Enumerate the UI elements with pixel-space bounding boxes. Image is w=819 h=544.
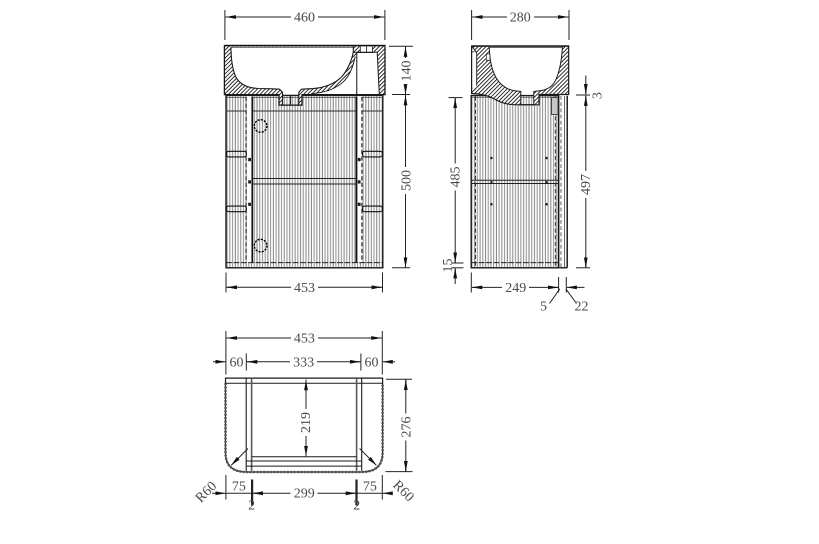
svg-text:249: 249: [505, 281, 526, 296]
svg-text:500: 500: [400, 170, 415, 191]
svg-text:R60: R60: [389, 478, 416, 505]
svg-text:R60: R60: [193, 479, 220, 506]
svg-text:276: 276: [399, 417, 414, 438]
svg-text:5: 5: [540, 300, 547, 315]
svg-text:280: 280: [510, 11, 531, 26]
svg-text:22: 22: [575, 300, 589, 315]
svg-text:333: 333: [293, 355, 314, 370]
svg-text:60: 60: [230, 355, 244, 370]
svg-text:460: 460: [294, 11, 315, 26]
svg-text:299: 299: [294, 487, 315, 502]
svg-text:15: 15: [441, 259, 456, 273]
svg-text:140: 140: [400, 61, 415, 82]
svg-text:219: 219: [299, 412, 314, 433]
svg-text:453: 453: [294, 281, 315, 296]
svg-text:60: 60: [365, 355, 379, 370]
svg-text:75: 75: [363, 480, 377, 495]
svg-text:3: 3: [591, 92, 606, 99]
svg-text:485: 485: [449, 167, 464, 188]
svg-text:2: 2: [353, 499, 360, 514]
svg-text:453: 453: [294, 332, 315, 347]
svg-text:75: 75: [232, 480, 246, 495]
svg-text:2: 2: [248, 499, 255, 514]
svg-text:497: 497: [579, 174, 594, 195]
